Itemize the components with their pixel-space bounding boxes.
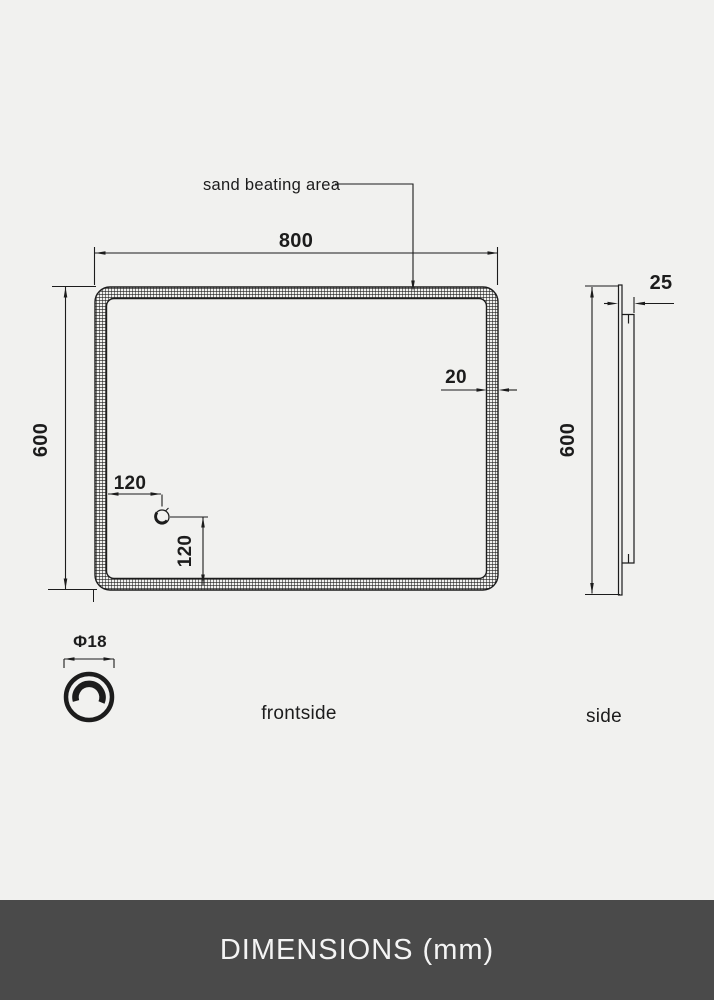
front-view bbox=[48, 184, 517, 720]
sensor-diameter-label: Φ18 bbox=[73, 632, 107, 651]
sand-beating-area-leader bbox=[335, 184, 415, 291]
sensor-diameter-icon bbox=[64, 657, 114, 720]
back-panel bbox=[622, 315, 634, 564]
depth-25-label: 25 bbox=[650, 272, 673, 294]
frontside-label: frontside bbox=[261, 703, 337, 724]
side-view bbox=[585, 285, 674, 595]
glass-panel bbox=[619, 285, 623, 595]
arrow-left-icon bbox=[95, 251, 106, 255]
arrow-up-icon bbox=[64, 287, 68, 298]
sensor-offset-y-120-label: 120 bbox=[175, 535, 196, 568]
arrow-right-icon bbox=[104, 657, 115, 661]
arrow-left-icon bbox=[64, 657, 75, 661]
sand-beating-area-label: sand beating area bbox=[203, 176, 341, 194]
sensor-offset-x-120-label: 120 bbox=[114, 473, 147, 494]
width-800-label: 800 bbox=[279, 230, 313, 252]
dimension-width-800 bbox=[95, 247, 499, 285]
dimension-height-600-front bbox=[48, 287, 97, 590]
frame-thickness-20-label: 20 bbox=[445, 367, 467, 388]
dimension-height-600-side bbox=[585, 286, 620, 595]
arrow-down-icon bbox=[590, 583, 594, 594]
dimension-depth-25 bbox=[604, 297, 674, 313]
side-label: side bbox=[586, 706, 622, 727]
arrow-down-icon bbox=[64, 579, 68, 590]
height-600-side-label: 600 bbox=[557, 423, 579, 457]
dimensions-footer-bar: DIMENSIONS (mm) bbox=[0, 900, 714, 1000]
footer-title: DIMENSIONS (mm) bbox=[220, 934, 494, 967]
dimmer-arc bbox=[76, 684, 103, 703]
arrow-right-icon bbox=[608, 302, 619, 306]
page: sand beating area 800 600 20 120 120 Φ18… bbox=[0, 0, 714, 1000]
arrow-left-icon bbox=[635, 302, 646, 306]
arrow-up-icon bbox=[590, 287, 594, 298]
frame-inner-edge bbox=[107, 299, 487, 579]
technical-drawing: sand beating area 800 600 20 120 120 Φ18… bbox=[0, 0, 714, 900]
mirror-frame bbox=[94, 287, 499, 602]
height-600-front-label: 600 bbox=[30, 423, 52, 457]
arrow-left-icon bbox=[499, 388, 510, 392]
arrow-right-icon bbox=[488, 251, 499, 255]
